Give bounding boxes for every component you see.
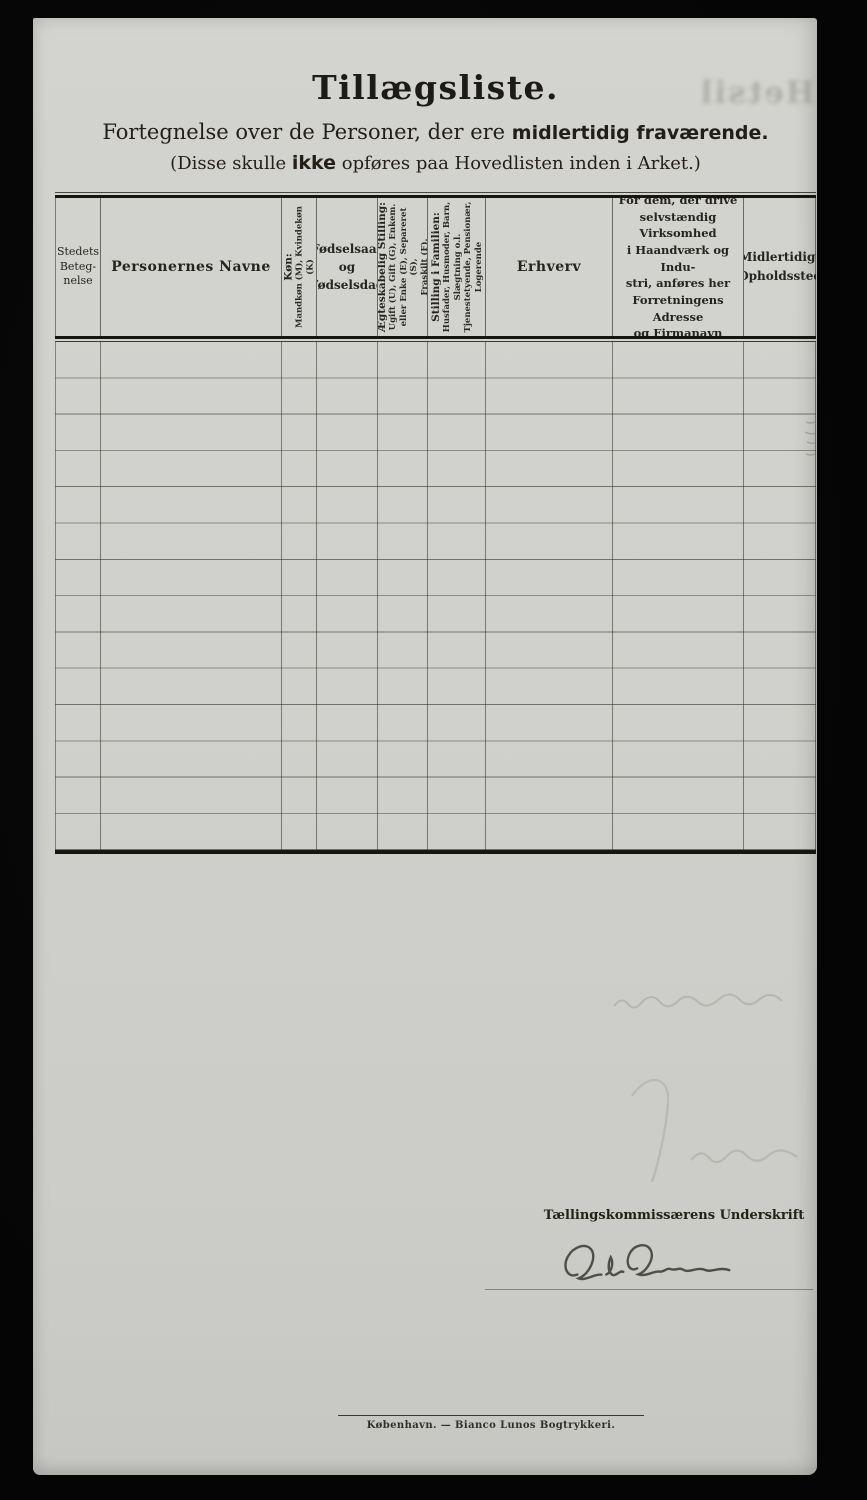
page-note: (Disse skulle ikke opføres paa Hovedlist… [55, 152, 816, 174]
koen-heading: Køn: [282, 253, 294, 280]
subtitle-bold-text: midlertidig fraværende. [512, 122, 769, 144]
column-header-foedselsaar: Fødselsaar og Fødselsdag [317, 198, 378, 336]
aegteskabelig-heading: Ægteskabelig Stilling: [378, 202, 387, 332]
note-suffix-text: opføres paa Hovedlisten inden i Arket.) [336, 153, 701, 174]
column-header-koen: Køn: Mandkøn (M), Kvindekøn (K) [282, 198, 317, 336]
column-header-stilling-i-familien: Stilling i Familien: Husfader, Husmoder,… [428, 198, 486, 336]
note-bold-text: ikke [292, 152, 336, 174]
body-column-foedselsaar [317, 342, 378, 850]
margin-smudge-mark [803, 416, 819, 462]
column-header-midlertidigt-opholdssted: Midlertidigt Opholdssted [744, 198, 816, 336]
crease-stroke-mark [618, 1068, 688, 1188]
note-text: (Disse skulle [170, 153, 292, 174]
census-table: Stedets Beteg- nelse Personernes Navne K… [55, 192, 816, 854]
familien-vertical-text: Stilling i Familien: Husfader, Husmoder,… [429, 200, 484, 334]
koen-vertical-text: Køn: Mandkøn (M), Kvindekøn (K) [282, 200, 315, 334]
table-bottom-rule [55, 850, 816, 854]
column-header-personernes-navne: Personernes Navne [101, 198, 282, 336]
body-column-virksomhed [613, 342, 744, 850]
body-column-koen [282, 342, 317, 850]
subtitle-text: Fortegnelse over de Personer, der ere [102, 120, 511, 144]
column-header-erhverv: Erhverv [486, 198, 613, 336]
aegteskabelig-detail: Ugift (U), Gift (G), Enkem. eller Enke (… [387, 200, 428, 334]
table-header-row: Stedets Beteg- nelse Personernes Navne K… [55, 198, 816, 336]
signature-label: Tællingskommissærens Underskrift [494, 1208, 854, 1223]
paper-sheet: Hetsil Tillægsliste. Fortegnelse over de… [33, 18, 817, 1475]
body-column-navne [101, 342, 282, 850]
table-body [55, 342, 816, 850]
page-subtitle: Fortegnelse over de Personer, der ere mi… [55, 120, 816, 144]
table-top-rule-thin [55, 192, 816, 193]
header-bottom-rule-thick [55, 336, 816, 339]
signature-line [485, 1289, 813, 1290]
body-column-stedets [56, 342, 101, 850]
imprint-rule [338, 1415, 644, 1416]
bleedthrough-handwriting-mark [610, 990, 795, 1016]
column-header-stedets-betegnelse: Stedets Beteg- nelse [56, 198, 101, 336]
aegteskabelig-vertical-text: Ægteskabelig Stilling: Ugift (U), Gift (… [378, 200, 428, 334]
column-header-aegteskabelig-stilling: Ægteskabelig Stilling: Ugift (U), Gift (… [378, 198, 428, 336]
familien-heading: Stilling i Familien: [429, 212, 441, 322]
body-column-aegteskabelig [378, 342, 428, 850]
bleedthrough-scribble-mark [685, 1136, 805, 1170]
koen-detail: Mandkøn (M), Kvindekøn (K) [294, 200, 315, 334]
document-headings: Tillægsliste. Fortegnelse over de Person… [55, 68, 816, 174]
column-header-virksomhed-adresse: For dem, der drive selvstændig Virksomhe… [613, 198, 744, 336]
body-column-familien [428, 342, 486, 850]
imprint-text: København. — Bianco Lunos Bogtrykkeri. [323, 1420, 659, 1431]
page-title: Tillægsliste. [55, 68, 816, 107]
familien-detail: Husfader, Husmoder, Barn, Slægtning o.l.… [441, 202, 484, 333]
body-column-erhverv [486, 342, 613, 850]
scanned-census-document: Hetsil Tillægsliste. Fortegnelse over de… [0, 0, 867, 1500]
